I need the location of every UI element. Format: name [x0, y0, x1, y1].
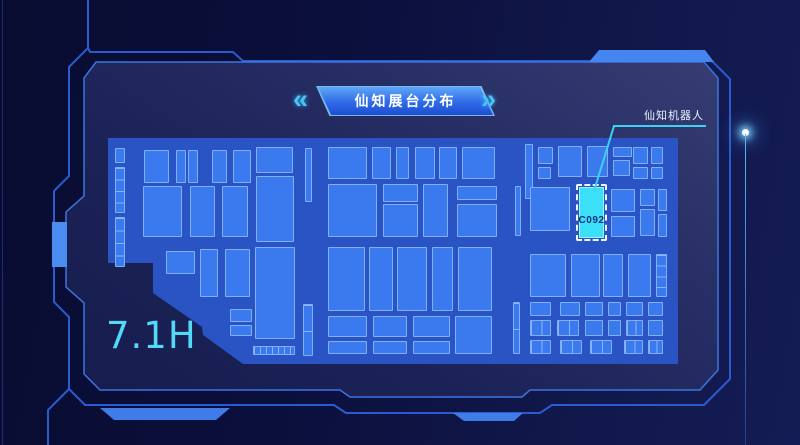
booth	[328, 341, 367, 354]
booth	[538, 167, 551, 179]
booth	[455, 316, 492, 354]
booth	[230, 325, 252, 336]
booth	[383, 184, 418, 202]
booth	[560, 340, 582, 354]
booth	[397, 247, 427, 311]
booth	[413, 341, 450, 354]
booth	[305, 148, 312, 202]
booth	[458, 247, 492, 311]
booth	[611, 189, 635, 212]
background-line-left	[2, 0, 3, 445]
booth	[143, 186, 182, 237]
booth	[640, 189, 655, 206]
page-title: 仙知展台分布	[318, 87, 493, 115]
booth	[144, 150, 169, 183]
frame-top-tab	[589, 50, 714, 62]
title-banner: 仙知展台分布	[318, 87, 493, 115]
booth	[538, 147, 553, 164]
booth	[396, 147, 409, 179]
booth	[439, 147, 457, 179]
booth	[383, 204, 418, 237]
booth	[608, 320, 621, 336]
frame-left-tab	[52, 222, 67, 267]
booth	[212, 150, 227, 183]
banner-right-chevron-icon: »	[481, 84, 496, 115]
booth-c092: C092	[579, 187, 604, 238]
booth	[611, 216, 635, 237]
booth	[372, 147, 391, 179]
frame-bottom-left-line	[48, 389, 69, 445]
booth	[530, 320, 551, 336]
booth	[624, 340, 643, 354]
booth	[190, 186, 215, 237]
booth	[530, 302, 551, 316]
booth	[648, 320, 663, 336]
booth	[640, 209, 655, 236]
booth	[423, 184, 448, 237]
booth	[530, 340, 551, 354]
booth	[613, 160, 630, 176]
booth	[255, 247, 295, 339]
exhibition-map-scene: 仙知展台分布 « » C092 仙知机器人 7.1H	[0, 0, 800, 445]
booth	[557, 320, 579, 336]
booth	[415, 147, 435, 179]
booth	[656, 254, 667, 297]
booth	[176, 150, 186, 183]
booth	[462, 147, 495, 179]
booth	[457, 186, 497, 200]
booth	[648, 302, 663, 316]
hall-number-label: 7.1H	[106, 314, 197, 357]
booth	[560, 302, 580, 316]
booth	[188, 150, 198, 183]
booth	[585, 320, 603, 336]
frame-bottom-left-tab	[100, 408, 230, 420]
booth	[256, 176, 294, 242]
booth	[530, 187, 570, 231]
booth	[457, 204, 497, 237]
booth	[253, 346, 295, 355]
booth	[608, 302, 621, 316]
booth	[558, 146, 582, 177]
booth	[369, 247, 393, 311]
booth	[328, 247, 365, 311]
booth	[530, 254, 566, 297]
background-line-right	[745, 134, 746, 445]
booth	[328, 184, 377, 237]
booth-c092-label: C092	[579, 215, 605, 226]
booth	[626, 302, 643, 316]
booth	[115, 148, 125, 163]
booth	[590, 340, 612, 354]
booth	[328, 147, 367, 179]
banner-left-chevron-icon: «	[293, 84, 308, 115]
booth	[233, 150, 251, 183]
booth	[200, 249, 218, 297]
booth	[166, 251, 195, 274]
booth	[513, 302, 520, 354]
booth	[373, 316, 407, 337]
booth	[413, 316, 450, 337]
booth	[585, 302, 603, 316]
frame-bottom-right-tab	[453, 413, 523, 421]
booth	[658, 189, 667, 211]
booth	[225, 249, 250, 297]
booth	[571, 254, 600, 297]
booth	[432, 247, 453, 311]
booth	[603, 254, 623, 297]
booth	[648, 340, 663, 354]
booth	[613, 147, 632, 157]
booth	[115, 167, 125, 213]
booth	[373, 341, 407, 354]
booth	[230, 309, 252, 322]
booth	[633, 167, 648, 179]
booth	[587, 146, 608, 177]
booth	[626, 320, 643, 336]
booth	[628, 254, 651, 297]
booth	[222, 186, 248, 237]
booth	[328, 316, 367, 337]
booth	[651, 147, 663, 164]
booth	[658, 214, 667, 237]
booth	[651, 167, 663, 179]
booth	[115, 217, 125, 267]
booth	[256, 147, 293, 173]
booth	[303, 304, 313, 356]
booth	[633, 147, 648, 164]
callout-label: 仙知机器人	[644, 107, 704, 123]
booth	[515, 186, 521, 236]
